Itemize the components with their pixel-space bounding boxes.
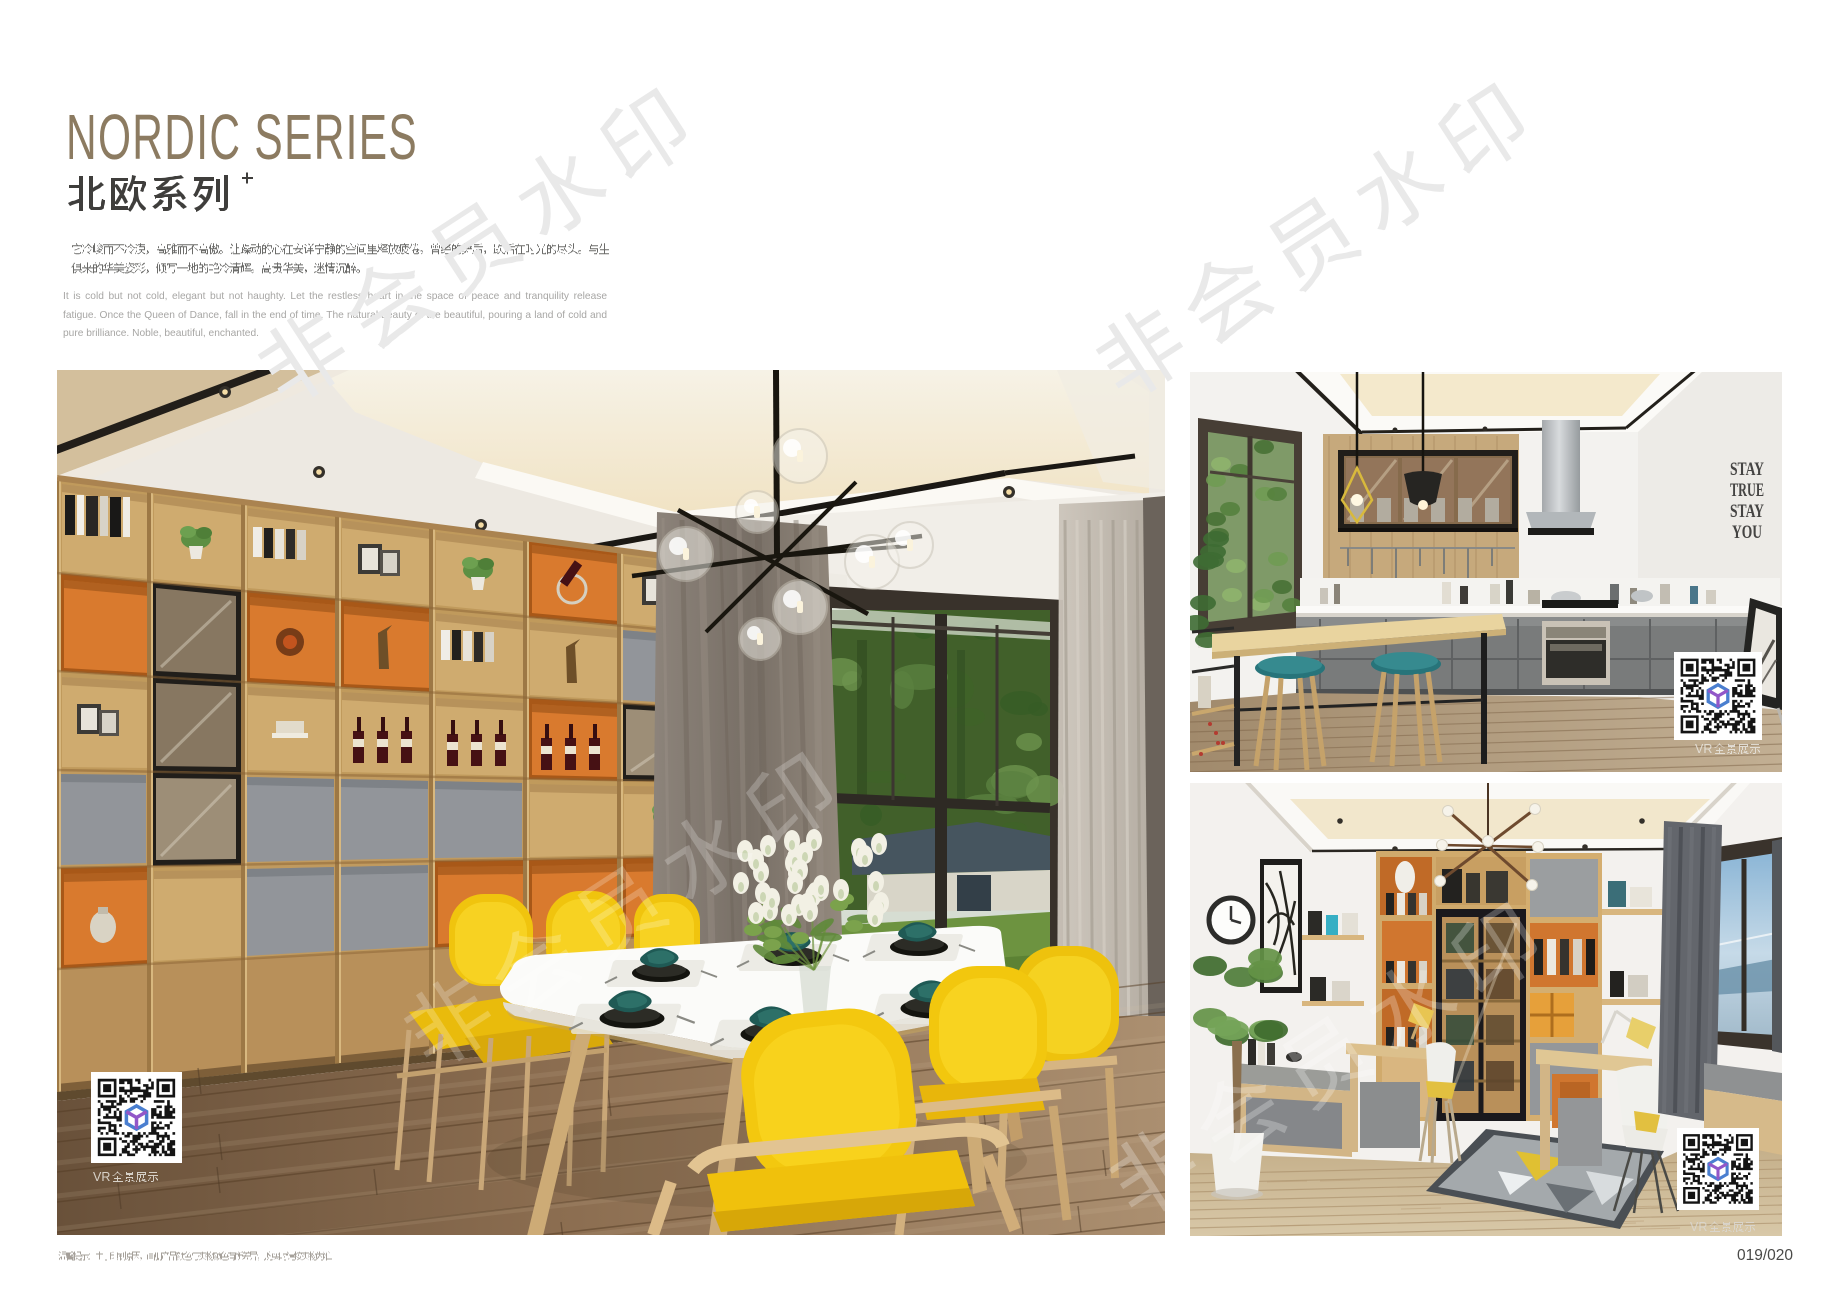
svg-text:STAY: STAY [1730, 501, 1764, 522]
svg-text:VR: VR [93, 1170, 110, 1184]
svg-text:VR: VR [1690, 1220, 1707, 1234]
svg-text:YOU: YOU [1732, 522, 1762, 543]
svg-text:VR: VR [1695, 742, 1712, 756]
svg-text:STAY: STAY [1730, 459, 1764, 480]
svg-text:TRUE: TRUE [1730, 480, 1764, 501]
